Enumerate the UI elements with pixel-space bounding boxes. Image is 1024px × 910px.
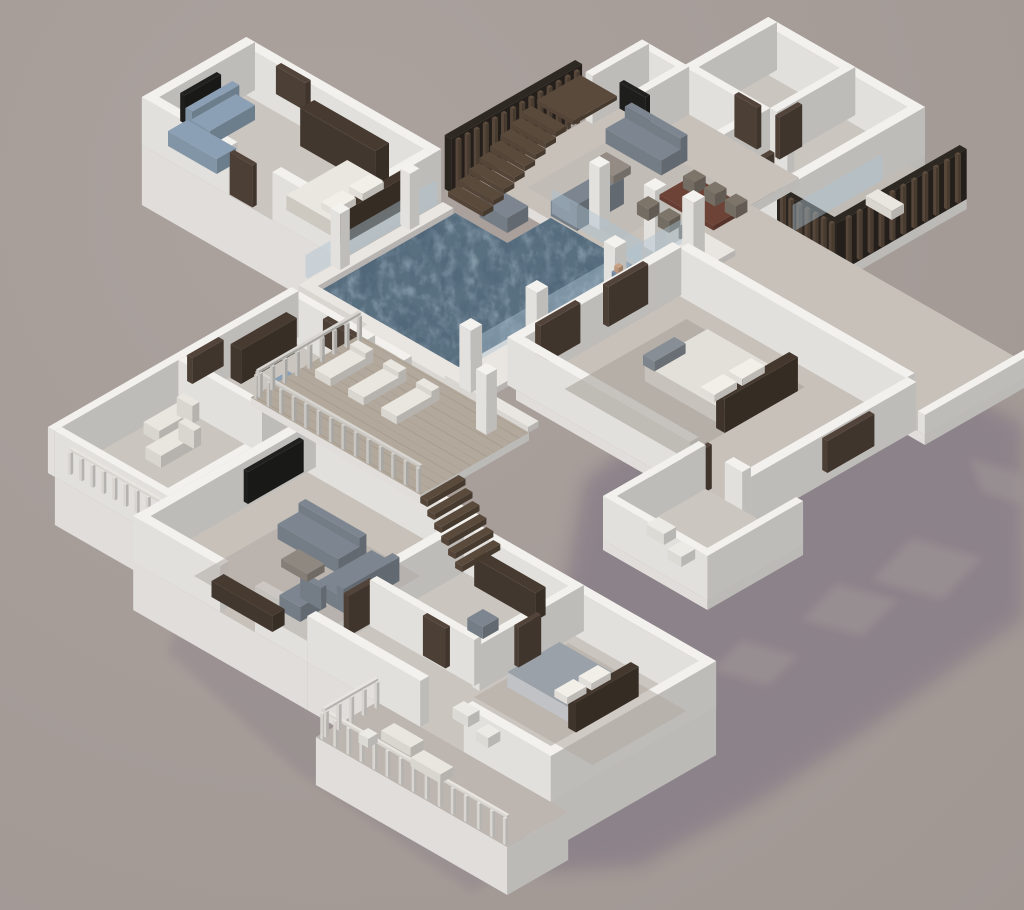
scene-root	[48, 17, 1024, 895]
floorplan-3d-render	[0, 0, 1024, 910]
villa-floorplan-svg	[0, 0, 1024, 910]
column	[476, 363, 497, 435]
column	[331, 203, 350, 270]
column	[400, 163, 419, 230]
